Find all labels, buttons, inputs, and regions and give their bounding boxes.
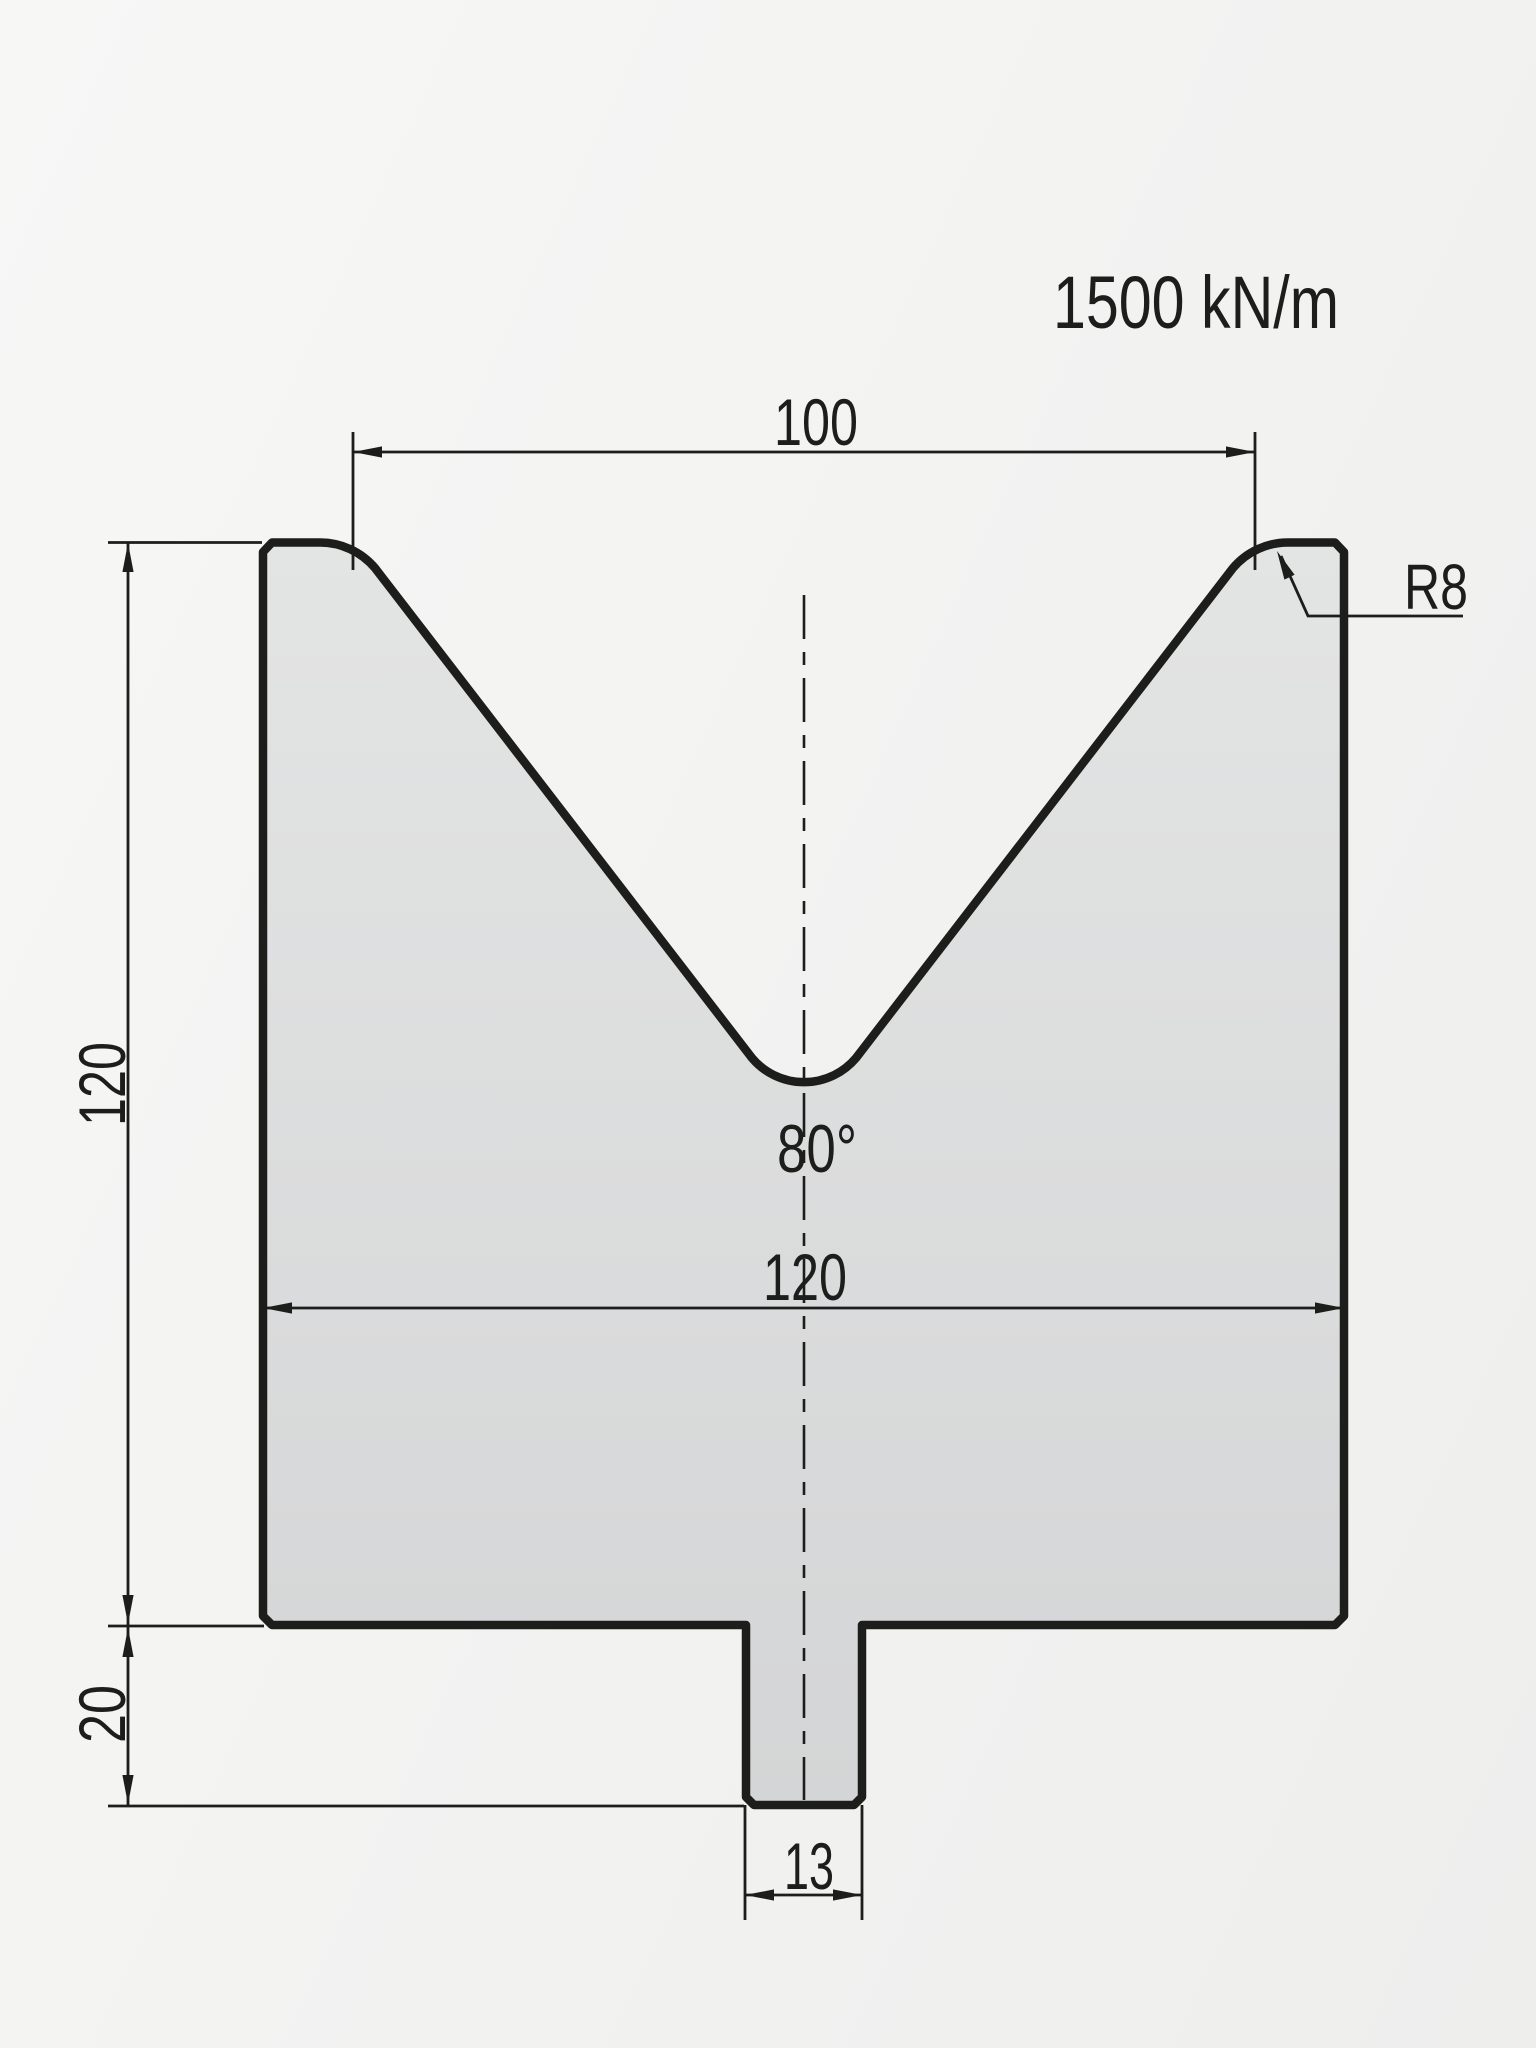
die-height-arrow-bottom [122, 1595, 133, 1624]
vee-width-arrow-left [353, 446, 382, 457]
tonnage-label: 1500 kN/m [1053, 261, 1339, 344]
tang-width-label: 13 [784, 1829, 834, 1903]
vee-width-label: 100 [774, 385, 858, 459]
tang-height-arrow-top [122, 1628, 133, 1657]
die-height-label: 120 [65, 1042, 139, 1126]
die-height-arrow-top [122, 543, 133, 572]
tang-width-arrow-left [745, 1889, 774, 1900]
vee-width-arrow-right [1226, 446, 1255, 457]
tang-width-arrow-right [833, 1889, 862, 1900]
vee-angle-label: 80° [777, 1111, 857, 1187]
die-cross-section-drawing: 1500 kN/m 100 R8 120 80° 120 20 13 [0, 0, 1536, 2048]
corner-radius-label: R8 [1404, 551, 1468, 623]
body-width-label: 120 [763, 1240, 847, 1314]
tang-height-arrow-bottom [122, 1775, 133, 1804]
technical-drawing-page: 1500 kN/m 100 R8 120 80° 120 20 13 [0, 0, 1536, 2048]
tang-height-label: 20 [65, 1685, 139, 1743]
